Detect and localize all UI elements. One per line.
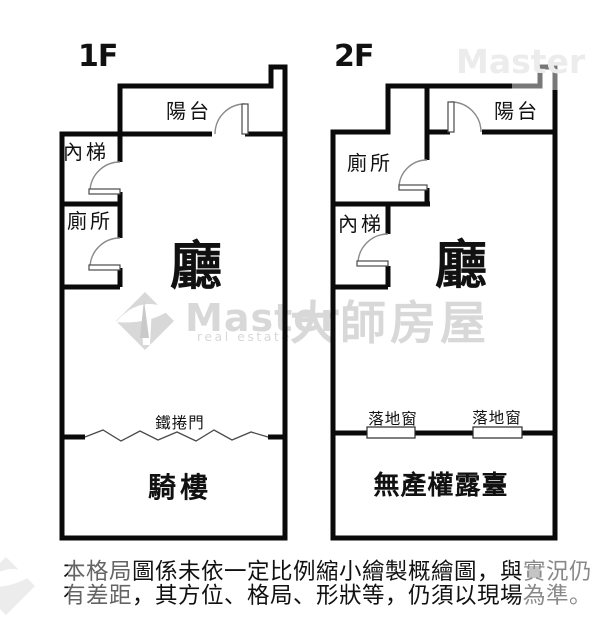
watermark-fade-bottomleft xyxy=(68,556,134,614)
watermark-logo-partial-icon xyxy=(0,557,35,615)
floor2-window-right xyxy=(473,427,522,438)
disclaimer-line2: 有差距，其方位、格局、形狀等，仍須以現場為準。 xyxy=(63,583,592,609)
floor2-balcony-label: 陽台 xyxy=(494,99,540,123)
floor1-arcade-label: 騎樓 xyxy=(148,471,212,504)
floor2-window-left xyxy=(367,427,415,438)
floor2-stairs-door-arc xyxy=(358,234,388,264)
floor2-toilet-door-leaf xyxy=(399,185,427,190)
watermark-fade-bottomright xyxy=(524,556,600,614)
floor1-balcony-label: 陽台 xyxy=(166,99,212,123)
watermark-faint-topright-text: Master xyxy=(456,42,586,81)
floor1-label: 1F xyxy=(78,39,117,74)
floor1-hall-label: 廳 xyxy=(170,237,222,297)
watermark-logo-icon xyxy=(116,292,174,350)
floor-plan-image: Master real estate 大師房屋 1F 陽台 內梯 廁所 廳 鐵捲… xyxy=(0,0,600,638)
floor2-hall-label: 廳 xyxy=(435,236,487,296)
floor1-roller-door-label: 鐵捲門 xyxy=(155,413,205,432)
floor1-stairs-label: 內梯 xyxy=(63,140,109,164)
floor2-toilet-door-arc xyxy=(399,160,427,188)
floor-plan-canvas: Master real estate 大師房屋 1F 陽台 內梯 廁所 廳 鐵捲… xyxy=(0,0,600,638)
watermark-brand-cjk-text: 大師房屋 xyxy=(290,296,490,350)
floor1-toilet-label: 廁所 xyxy=(67,209,113,233)
floor2-stairs-door-leaf xyxy=(357,261,388,266)
floor2-balcony-door-leaf xyxy=(448,102,454,132)
floor2-window-left-label: 落地窗 xyxy=(368,410,418,428)
floor2-balcony-door-arc xyxy=(451,102,481,132)
floor2-plan: 2F 陽台 廁所 內梯 廳 落地窗 落地窗 無產權露臺 xyxy=(333,39,555,538)
floor1-balcony-door-arc xyxy=(215,104,245,134)
floor1-plan: 1F 陽台 內梯 廁所 廳 鐵捲門 騎樓 xyxy=(62,39,285,538)
watermark-tagline-text: real estate xyxy=(197,329,292,344)
floor2-label: 2F xyxy=(334,39,373,74)
floor1-stairs-door-leaf xyxy=(89,189,120,194)
floor1-toilet-door-leaf xyxy=(89,265,120,270)
floor1-stairs-door-arc xyxy=(90,162,120,192)
floor1-balcony-door-leaf xyxy=(242,104,248,134)
floor1-toilet-door-arc xyxy=(90,238,120,268)
floor2-window-right-label: 落地窗 xyxy=(472,409,522,427)
floor2-toilet-label: 廁所 xyxy=(347,151,393,175)
floor2-terrace-label: 無產權露臺 xyxy=(373,470,508,501)
floor2-stairs-label: 內梯 xyxy=(338,212,384,236)
disclaimer-line1: 本格局圖係未依一定比例縮小繪製概繪圖，與實況仍 xyxy=(63,559,592,585)
